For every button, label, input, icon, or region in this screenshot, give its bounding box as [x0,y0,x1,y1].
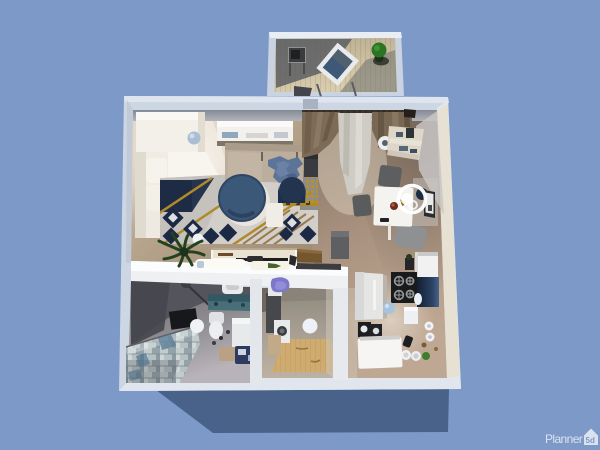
svg-text:5d: 5d [586,436,595,445]
svg-text:Planner: Planner [545,432,583,446]
